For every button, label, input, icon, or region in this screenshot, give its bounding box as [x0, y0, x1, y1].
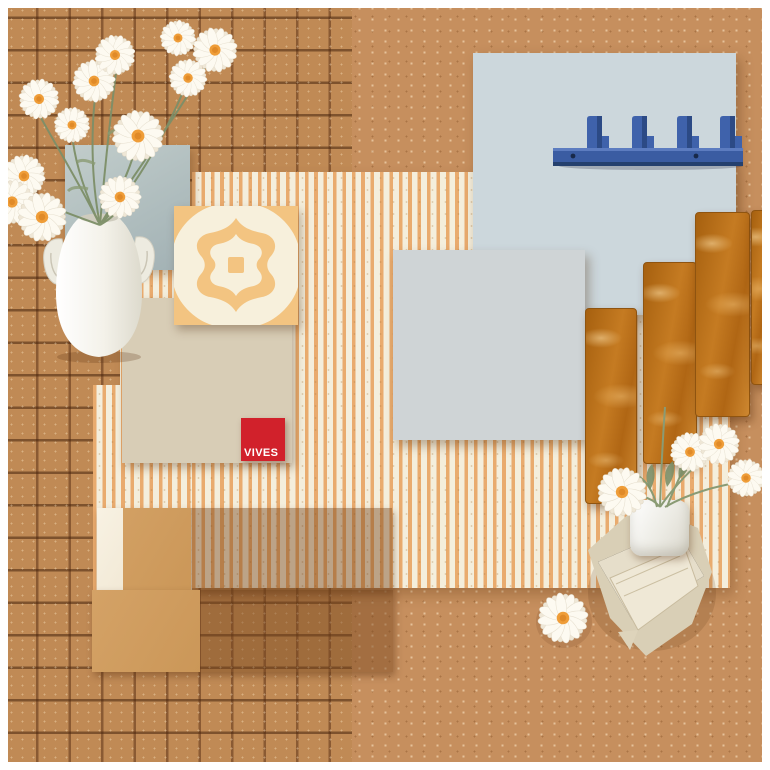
- tile-moodboard-photo: VIVES: [0, 0, 770, 770]
- camel-tile-row: [97, 508, 392, 590]
- daisy-bouquet: [0, 14, 250, 264]
- caramel-plank-tile: [695, 212, 750, 417]
- checkerboard-tile-panel: [393, 250, 585, 440]
- single-daisy: [528, 586, 598, 652]
- caramel-plank-tile-partial: [751, 210, 765, 385]
- white-accent-tile: [97, 508, 123, 590]
- vives-logo-text: VIVES: [244, 447, 278, 459]
- camel-tile: [92, 590, 200, 672]
- cup-daisies-and-greenery: [595, 395, 770, 560]
- hook-shading: [597, 116, 735, 148]
- hook-icon: [587, 116, 742, 148]
- bouquet-daisies: [0, 18, 243, 247]
- blue-wall-hook-rack: [553, 114, 745, 170]
- camel-tile-row: [92, 590, 393, 672]
- hook-rack-bar-highlight: [553, 148, 743, 151]
- vives-logo-tile: VIVES: [241, 418, 285, 461]
- screw-hole-icon: [571, 154, 576, 159]
- hook-rack-bar-edge: [553, 162, 743, 166]
- screw-hole-icon: [694, 154, 699, 159]
